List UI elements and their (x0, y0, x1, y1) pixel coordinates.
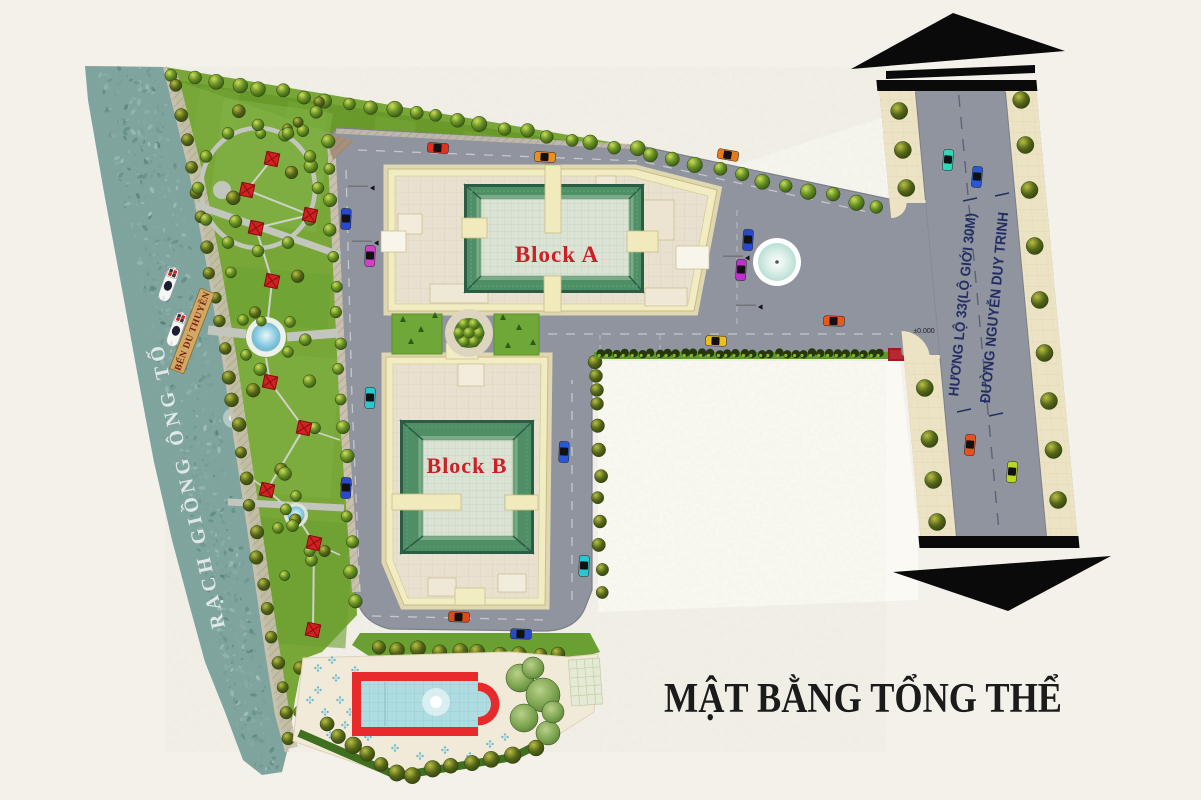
svg-text:Block A: Block A (515, 242, 599, 267)
svg-text:±0.000: ±0.000 (913, 328, 934, 335)
svg-text:Block B: Block B (427, 453, 508, 478)
svg-text:MẬT BẰNG TỔNG THỂ: MẬT BẰNG TỔNG THỂ (664, 673, 1062, 722)
